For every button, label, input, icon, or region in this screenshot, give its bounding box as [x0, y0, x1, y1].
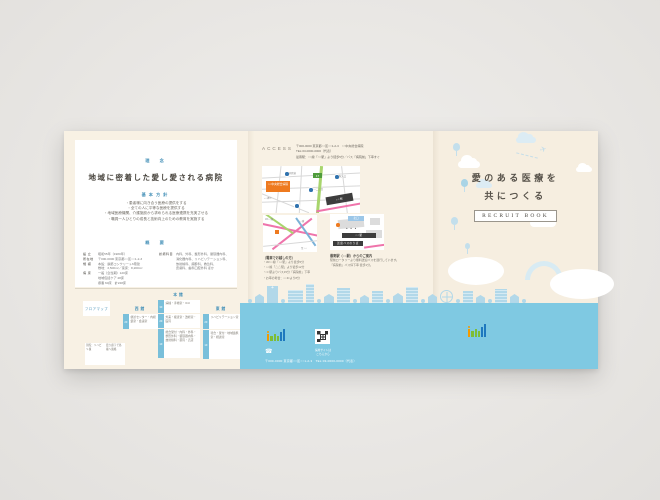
philosophy-title: 地域に密着した愛し愛される病院: [75, 172, 237, 183]
house-icon: [360, 295, 369, 303]
line-label: JR○○線: [265, 217, 273, 221]
guide-dot: [336, 223, 340, 227]
bus-stop-label: ○○二丁目: [313, 187, 323, 191]
overview-left-column: 設 立昭和55年（1980年） 所在地〒000-0000 東京都○○区○○1-2…: [83, 252, 155, 285]
policy-section-label: 基本方針: [75, 192, 237, 198]
house-icon: [510, 294, 519, 303]
railway-line-pink: [364, 243, 384, 248]
map-road: [263, 240, 317, 247]
access-line: 最寄駅：○○線「○○駅」より徒歩5分／バス「病院前」下車すぐ: [296, 155, 446, 160]
brochure-spread: 理 念 地域に密着した愛し愛される病院 基本方針 ・患者様に向き合う医療の提供を…: [64, 131, 598, 369]
access-info: 〒000-0000 東京都○○区○○1-2-3 ○○中央総合病院 TEL:03-…: [296, 144, 446, 160]
policy-list: ・患者様に向き合う医療の提供をする ・全ての人に平等な医療を提供する ・地域医療…: [75, 201, 237, 222]
shuttle-bus-stop: 送迎バスのりば: [333, 241, 363, 246]
north-exit-label: 北口: [348, 216, 364, 221]
access-label: ACCESS: [262, 146, 293, 151]
station-guide-lines: 駅前ロータリーより無料送迎バスを運行しています。 「病院前」バス停下車 徒歩1分…: [330, 258, 402, 268]
floor-rooms: リハビリテーション室: [209, 314, 240, 329]
recruit-book-badge: RECRUIT BOOK: [474, 210, 557, 222]
house-icon: [428, 294, 437, 303]
bus-stop-label: 駅入口: [339, 174, 346, 178]
floor-rooms: 待合・受付・地域連携室・相談室: [209, 330, 240, 359]
hospital-building-icon: +: [267, 286, 278, 303]
floor-rooms: 病棟・手術室・ICU: [164, 300, 200, 313]
train-line-map: JR○○線 ○○線 至 ○○: [263, 215, 317, 252]
hospital-group-logo: [267, 329, 285, 341]
building-icon: [306, 284, 314, 303]
building-icon: [463, 291, 473, 303]
philosophy-section-label: 理 念: [75, 158, 237, 164]
train-access: 〔電車でお越しの方〕 ・JR○○線「○○駅」より徒歩5分 ・○○線「△△駅」より…: [263, 255, 333, 281]
floor-map-note: 渡り廊下で各棟へ連絡: [105, 343, 125, 365]
floor-row: 1F 待合・受付・地域連携室・相談室: [203, 330, 240, 359]
floor-rooms: 総合受付・内科・外科・整形外科・循環器内科・放射線科・薬局・売店: [164, 329, 200, 358]
station-guide: 最寄駅（○○駅）からのご案内 駅前ロータリーより無料送迎バスを運行しています。 …: [330, 253, 402, 268]
cloud-icon: [458, 161, 480, 168]
building-icon: [372, 291, 383, 303]
cover-title-line1: 愛のある医療を: [433, 171, 598, 184]
floor-row: 2F 外来・検査室・透析室・医局: [158, 314, 200, 328]
line-label: ○○線: [299, 219, 304, 223]
line-label: 至 ○○: [301, 246, 307, 250]
hospital-marker: ○○中央総合病院: [266, 181, 290, 192]
house-icon: [255, 294, 264, 303]
station-platform: ○○駅: [342, 233, 376, 238]
building-icon: [288, 290, 303, 303]
street-map: 17 ○○駅 ○○中央総合病院 病院前 ○○二丁目 駅入口 ○○通り: [262, 166, 360, 213]
floor-rooms: 健診センター・内視鏡室・会議室: [129, 314, 158, 329]
overview-row: 療養 60床 計228床: [83, 281, 155, 286]
building-icon: [495, 289, 507, 303]
house-icon: [393, 293, 403, 303]
train-access-list: ・JR○○線「○○駅」より徒歩5分 ・○○線「△△駅」より徒歩12分 ・□□駅よ…: [263, 260, 333, 281]
cover-title-line2: 共につくる: [433, 189, 598, 202]
qr-code: [315, 329, 330, 344]
floor-row: 1F 総合受付・内科・外科・整形外科・循環器内科・放射線科・薬局・売店: [158, 329, 200, 358]
overview-section-label: 概 要: [75, 240, 237, 246]
floor-rooms: 外来・検査室・透析室・医局: [164, 314, 200, 328]
floor-map-note: 別館：リハビリ棟: [85, 343, 105, 365]
water-band: 採用サイトは こちらから ☎ 〒000-0000 東京都○○区○○1-2-3 T…: [240, 303, 598, 369]
street-label: ○○通り: [264, 196, 272, 200]
floor-row: 2F 健診センター・内視鏡室・会議室: [123, 314, 158, 329]
station-area-map: 北口 ● ● ● ○○駅 送迎バスのりば: [330, 214, 384, 250]
floor-map-building-main: 本館 3F 病棟・手術室・ICU 2F 外来・検査室・透析室・医局 1F 総合受…: [158, 293, 200, 358]
back-address-line: 〒000-0000 東京都○○区○○1-2-3 TEL:03-0000-0000…: [265, 359, 357, 363]
hospital-group-logo: [468, 324, 486, 337]
floor-map-building-west: 西館 2F 健診センター・内視鏡室・会議室: [123, 307, 158, 329]
left-panel-divider: [75, 288, 237, 289]
house-icon: [476, 295, 485, 303]
phone-icon: ☎: [265, 348, 272, 355]
route-number-badge: 17: [313, 173, 322, 178]
bus-stop-marker: [294, 203, 300, 209]
balloon-icon: [465, 243, 470, 254]
floor-map-title: フロアマップ: [83, 301, 110, 316]
cloud-icon: [516, 137, 536, 143]
bus-stop-label: 病院前: [289, 171, 296, 175]
floor-map-building-east: 東館 2F リハビリテーション室 1F 待合・受付・地域連携室・相談室: [203, 307, 240, 359]
overview-right-column: 診療科目内科、外科、整形外科、循環器内科、 消化器内科、リハビリテーション科、 …: [159, 252, 233, 271]
hospital-dot: [275, 230, 279, 234]
overview-row: 皮膚科、歯科口腔外科 ほか: [159, 266, 233, 271]
map-building-block: [370, 218, 380, 225]
policy-item: ・職員一人ひとりの成長と技術向上のための教育を実施する: [75, 217, 237, 222]
house-icon: [324, 294, 334, 303]
balloon-icon: [453, 143, 460, 156]
cover-title-block: 愛のある医療を 共につくる RECRUIT BOOK: [433, 171, 598, 222]
photo-backdrop: 理 念 地域に密着した愛し愛される病院 基本方針 ・患者様に向き合う医療の提供を…: [0, 0, 660, 500]
philosophy-card: 理 念 地域に密着した愛し愛される病院 基本方針 ・患者様に向き合う医療の提供を…: [75, 140, 237, 287]
rotary-dots: ● ● ●: [346, 227, 357, 230]
ferris-wheel-icon: [440, 290, 453, 303]
city-skyline: +: [240, 280, 598, 303]
building-icon: [337, 288, 350, 303]
floor-row: 3F 病棟・手術室・ICU: [158, 300, 200, 313]
floor-row: 2F リハビリテーション室: [203, 314, 240, 329]
qr-caption: 採用サイトは こちらから: [313, 349, 333, 357]
station-guide-line: 「病院前」バス停下車 徒歩1分。: [330, 263, 402, 268]
building-icon: [406, 287, 418, 303]
